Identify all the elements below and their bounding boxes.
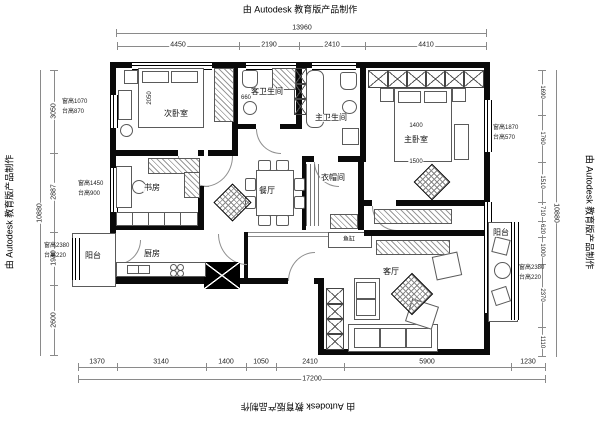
tick [117,42,118,50]
sink [342,100,357,114]
door-arc [256,129,281,154]
threshold-line [248,232,328,233]
dim-bottom-7: 1230 [519,359,537,366]
dim-right-7: 2370 [539,287,545,302]
door-arc [218,234,247,265]
tick [50,153,58,154]
living-label: 客厅 [382,268,400,276]
annotation-left-mid: 窗高1450 台高900 [78,180,103,199]
dim-bed-length: 1500 [408,159,423,165]
watermark-right: 由 Autodesk 教育版产品制作 [584,155,597,270]
cushion [406,328,432,348]
wall-living-top [364,230,484,236]
nightstand [452,88,466,102]
wall [364,200,372,206]
dim-right-1: 1690 [539,84,545,99]
toilet [340,72,357,90]
sink [243,101,257,115]
pillow [424,91,447,103]
stove-burner [170,270,177,277]
dim-right-6: 1000 [539,242,545,257]
entry-door-arc [288,252,315,281]
wardrobe-cell [425,70,446,88]
tick [538,327,546,328]
dim-right-3: 1510 [539,174,545,189]
annotation-line: 窗高1450 [78,180,103,190]
cushion [354,328,380,348]
wall-kitchen-bottom [110,276,204,284]
cloakroom-label: 衣帽间 [320,174,346,182]
bookcase-cell [326,333,344,350]
flue-shaft [204,262,240,289]
tick [538,237,546,238]
master-bathroom-label: 主卫生间 [314,114,348,122]
pillow [142,71,169,83]
dining-chair [258,215,271,226]
nightstand [380,88,394,102]
tick [50,70,58,71]
cushion [356,299,376,316]
pillow [398,91,421,103]
watermark-left: 由 Autodesk 教育版产品制作 [3,155,16,270]
tick [117,363,118,371]
dim-bottom-2: 3140 [152,359,170,366]
desk [116,166,132,208]
dining-chair [294,196,305,209]
balcony-right-label: 阳台 [492,229,510,237]
dim-bed-width: 1400 [408,123,423,129]
window [312,62,356,70]
dimension-line [117,33,487,34]
dining-chair [294,178,305,191]
nightstand [124,70,138,84]
door-arc [204,156,233,187]
corner-sofa [184,172,200,198]
dim-left-total: 10880 [37,202,44,223]
tick [50,285,58,286]
dining-chair [245,178,256,191]
tick [206,363,207,371]
annotation-line: 窗高1070 [62,98,87,108]
kitchen-label: 厨房 [143,250,161,258]
sink-basin [138,265,150,274]
tick [276,363,277,371]
dim-right-8: 1110 [539,335,545,349]
console-bench [374,209,452,224]
floorplan-canvas: 由 Autodesk 教育版产品制作 由 Autodesk 教育版产品制作 由 … [0,0,600,421]
tick [365,42,366,50]
dim-right-4: 710 [539,205,545,217]
window [484,100,492,152]
secondary-bedroom-label: 次卧室 [163,110,189,118]
tick [538,202,546,203]
annotation-line: 台高220 [44,252,69,262]
dining-chair [258,160,271,171]
dim-left-1: 3050 [51,102,58,120]
dim-bottom-5: 2410 [301,359,319,366]
annotation-line: 台高870 [62,108,87,118]
wall [238,124,256,129]
washer [342,128,359,145]
annotation-line: 窗高2380 [44,242,69,252]
guest-bathroom-label: 客卫生间 [250,88,284,96]
dimension-line [78,367,546,368]
tick [78,363,79,371]
window [110,95,118,128]
toilet [242,70,258,88]
tick [50,232,58,233]
tick [486,42,487,50]
dim-top-2: 2190 [260,42,278,49]
annotation-right-mid: 窗高2380 台高220 [519,264,544,283]
dim-top-3: 2410 [323,42,341,49]
wall-hall-bottom [240,278,288,284]
wardrobe-cell [406,70,427,88]
balcony-table [494,262,511,279]
bench [454,124,469,160]
tick [78,375,79,383]
dim-top-4: 4410 [417,42,435,49]
dim-right-2: 1760 [539,130,545,145]
tick [50,355,58,356]
wall [360,62,366,162]
annotation-line: 窗高2380 [519,264,544,274]
window-floor-to-ceiling [511,222,519,320]
dim-bottom-3: 1400 [217,359,235,366]
watermark-bottom: 由 Autodesk 教育版产品制作 [241,401,356,414]
dim-bottom-6: 5900 [418,359,436,366]
wardrobe-cell [444,70,465,88]
armchair [432,252,462,281]
cloakroom-rail [330,214,358,229]
bookshelf-cell [180,212,198,226]
tick [344,363,345,371]
dim-bedroom2: 2050 [147,90,153,105]
tick [116,29,117,37]
tick [545,375,546,383]
dim-bottom-4: 1050 [252,359,270,366]
tick [246,363,247,371]
master-bedroom-label: 主卧室 [403,136,429,144]
wardrobe-cell [463,70,484,88]
fish-tank-label: 鱼缸 [342,237,356,243]
dining-chair [276,160,289,171]
annotation-line: 台高220 [519,274,544,284]
tick [538,356,546,357]
dim-left-2: 2887 [51,183,58,201]
tick [538,221,546,222]
watermark-top: 由 Autodesk 教育版产品制作 [243,3,358,16]
annotation-left-bottom: 窗高2380 台高220 [44,242,69,261]
wardrobe [214,68,234,122]
wardrobe-cell [387,70,408,88]
rug [414,164,451,201]
chair [120,124,133,137]
dim-bottom-1: 1370 [88,359,106,366]
wall [116,150,178,156]
cushion [356,282,376,299]
pillow [171,71,198,83]
stove-burner [177,270,184,277]
annotation-left-top: 窗高1070 台高870 [62,98,87,117]
tick [511,363,512,371]
wall-cloak-right [358,161,364,230]
balcony-left-label: 阳台 [84,252,102,260]
tick [545,363,546,371]
dim-left-4: 2600 [51,311,58,329]
wall [396,200,490,206]
tick [299,42,300,50]
annotation-line: 窗高1870 [493,124,518,134]
annotation-line: 台高570 [493,134,518,144]
tick [538,115,546,116]
tick [239,42,240,50]
dim-right-total: 10880 [553,202,560,223]
dim-top-total: 13960 [291,25,312,32]
annotation-right-top: 窗高1870 台高570 [493,124,518,143]
dresser [118,90,132,120]
annotation-line: 台高900 [78,190,103,200]
tick [486,29,487,37]
cushion [380,328,406,348]
tick [538,162,546,163]
wall [280,124,302,129]
dim-bottom-total: 17200 [301,376,322,383]
dim-top-1: 4450 [169,42,187,49]
study-label: 书房 [143,184,161,192]
threshold-line [248,236,328,237]
dining-chair [276,215,289,226]
dim-right-5: 620 [539,223,545,235]
window-floor-to-ceiling [72,238,80,280]
tv-console [376,240,450,255]
dining-label: 餐厅 [258,187,276,195]
wall-step [318,284,324,355]
wardrobe-cell [368,70,389,88]
tick [538,70,546,71]
